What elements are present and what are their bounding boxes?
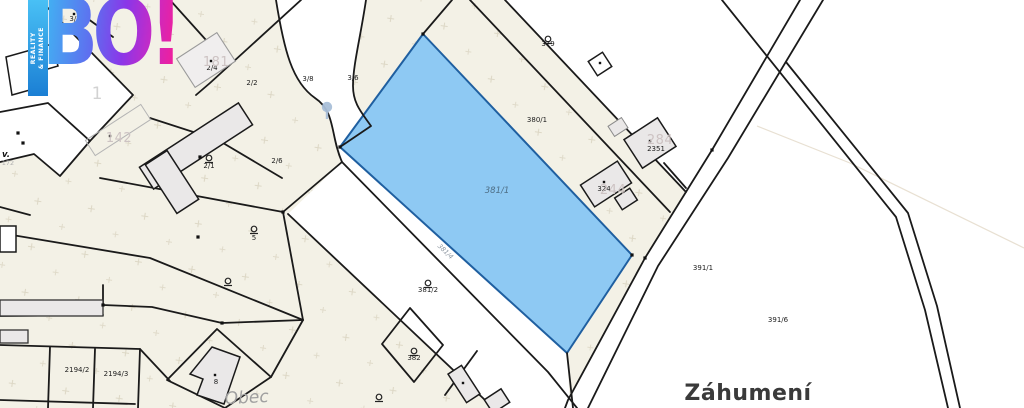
map-label-2-6: 2/6 xyxy=(271,157,283,165)
survey-point xyxy=(630,253,633,256)
map-label-3-1: 3/1 xyxy=(69,15,80,23)
map-label-5: 5 xyxy=(252,234,256,242)
map-label-391-6: 391/6 xyxy=(768,316,789,324)
cadastral-map[interactable]: 3/12/42/23/83/62/12/65379380/12351324391… xyxy=(0,0,1024,408)
building-point xyxy=(462,382,464,384)
building xyxy=(0,300,103,316)
map-label-284: 284 xyxy=(647,133,673,148)
survey-point xyxy=(281,210,284,213)
survey-point xyxy=(643,256,646,259)
building-point xyxy=(214,374,216,376)
map-label-v-: v. xyxy=(2,150,10,160)
building xyxy=(0,330,28,343)
map-label-Obec: Obec xyxy=(224,387,270,408)
map-label-142: 142 xyxy=(106,131,132,146)
map-label-Z-humen-: Záhumení xyxy=(684,381,812,406)
map-label-3-6: 3/6 xyxy=(347,74,359,82)
map-label-172: 172 xyxy=(2,159,14,167)
map-label-391-1: 391/1 xyxy=(693,264,713,272)
building xyxy=(0,226,16,252)
map-label-379: 379 xyxy=(541,40,554,48)
map-label-381-1: 381/1 xyxy=(485,186,510,196)
survey-point xyxy=(196,235,199,238)
building xyxy=(6,44,58,95)
map-label-2194-2: 2194/2 xyxy=(65,366,90,374)
map-label-181: 181 xyxy=(203,55,229,70)
survey-point xyxy=(338,145,341,148)
map-label-3-8: 3/8 xyxy=(302,75,313,83)
map-label-2-2: 2/2 xyxy=(246,79,257,87)
building-point xyxy=(599,62,601,64)
survey-point xyxy=(101,303,104,306)
map-label-2194-3: 2194/3 xyxy=(104,370,129,378)
map-label-2-1: 2/1 xyxy=(203,162,214,170)
map-label-382: 382 xyxy=(407,354,420,362)
map-label-244: 244 xyxy=(600,183,626,198)
faint-paths xyxy=(757,126,1024,248)
map-label-380-1: 380/1 xyxy=(527,116,547,124)
survey-point xyxy=(710,148,713,151)
survey-point xyxy=(16,131,19,134)
survey-point xyxy=(198,155,201,158)
map-label-1: 1 xyxy=(92,84,103,104)
survey-point xyxy=(220,321,223,324)
map-label-381-2: 381/2 xyxy=(418,286,438,294)
map-label-8: 8 xyxy=(214,378,218,386)
survey-point xyxy=(421,32,424,35)
cadastral-map-screenshot: 3/12/42/23/83/62/12/65379380/12351324391… xyxy=(0,0,1024,408)
survey-point xyxy=(21,141,24,144)
